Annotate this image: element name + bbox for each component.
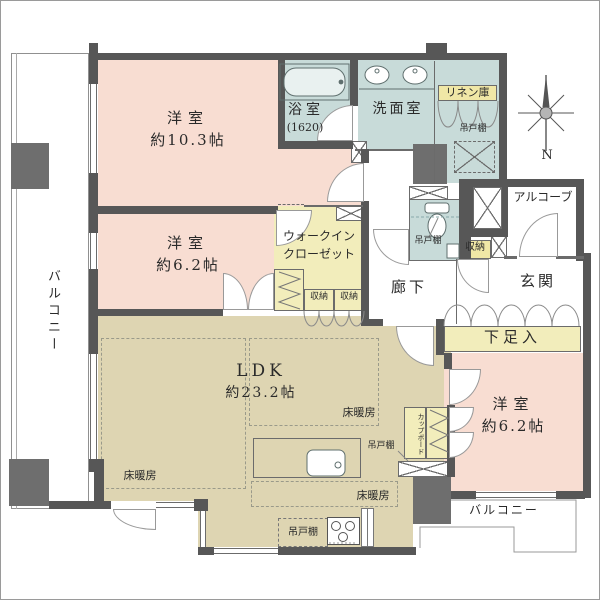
- bedroom3-size: 約6.2帖: [444, 419, 583, 435]
- entrance-label: 玄関: [515, 274, 561, 290]
- wic-label-line1: ウォークイン: [277, 230, 361, 243]
- elevator-shaft-x: [473, 187, 502, 229]
- wall-entry-door-l: [504, 256, 517, 259]
- toilet-area: [409, 199, 461, 261]
- wall-alcove-top: [502, 179, 584, 187]
- wall-kitchen-bottom: [278, 547, 416, 555]
- wall-left-5: [94, 471, 104, 502]
- wall-corridor-bottom: [361, 319, 383, 326]
- line-genkan-hall: [456, 259, 457, 324]
- wall-bedroom3-bottom-l: [451, 491, 476, 499]
- wall-bottom-left: [49, 501, 111, 509]
- hall-storage-door: [457, 259, 489, 293]
- wall-bedroom3-upper: [444, 353, 452, 369]
- wall-nook: [361, 149, 369, 163]
- bedroom2-closet: [274, 269, 304, 311]
- bedroom2-label: 洋室: [113, 236, 263, 252]
- bath-size: (1620): [278, 122, 332, 134]
- meter-box-x: [491, 236, 507, 258]
- linen-label: リネン庫: [438, 87, 497, 99]
- kitchen-island: [253, 438, 361, 478]
- compass-north-label: N: [537, 149, 557, 163]
- hanging-cupboard-label-3: 吊戸棚: [363, 442, 399, 451]
- wall-bedroom3-bottom-r: [556, 491, 585, 499]
- window-bedroom1: [90, 84, 97, 173]
- wall-left-1: [89, 60, 98, 84]
- hanging-cupboard-label-4: 吊戸棚: [280, 526, 326, 540]
- bath-label: 浴室: [280, 103, 332, 118]
- balcony-left-label: バルコニー: [39, 239, 59, 384]
- wic-label-line2: クローゼット: [277, 248, 361, 261]
- wall-kitchen-corner-2: [198, 547, 214, 555]
- duct-block-center: [413, 144, 447, 184]
- wic-storage-label-1: 収納: [305, 293, 333, 302]
- ldk-size: 約23.2帖: [201, 386, 321, 401]
- cupboard-label: カップボード: [407, 409, 424, 459]
- bedroom1-label: 洋室: [113, 111, 263, 127]
- balcony-bottom-label: バルコニー: [463, 504, 545, 517]
- alcove-label: アルコーブ: [505, 191, 581, 204]
- wall-right-lower: [583, 257, 591, 498]
- hall-storage-label: 収納: [459, 243, 491, 254]
- washroom-hanging-cupboard-x: [454, 141, 495, 173]
- wall-top: [89, 53, 507, 60]
- tall-cabinet-line: [367, 509, 368, 546]
- hanging-cupboard-label-2: 吊戸棚: [409, 237, 447, 246]
- wall-top-left-post: [89, 43, 98, 60]
- duct-block-bottom: [413, 476, 451, 524]
- line-wic-top: [304, 205, 363, 207]
- washroom-label: 洗面室: [361, 102, 435, 117]
- wall-top-block: [426, 43, 447, 54]
- wall-bath-bottom: [278, 141, 353, 149]
- compass-icon: [518, 75, 574, 151]
- toilet-door: [373, 229, 409, 265]
- hallway-label: 廊下: [385, 280, 433, 296]
- floor-heating-zone-left: [101, 338, 246, 489]
- window-ldk-bottom: [156, 502, 198, 508]
- wic-storage-label-2: 収納: [335, 293, 363, 302]
- window-bedroom2: [90, 233, 97, 269]
- cupboard-under-x: [398, 461, 449, 477]
- wall-entry-door-r: [556, 256, 584, 259]
- wall-kitchen-corner-1: [194, 499, 208, 511]
- floor-heating-label-3: 床暖房: [347, 490, 399, 502]
- wall-bedroom-divider: [89, 206, 278, 214]
- balcony-left-rail: [16, 53, 17, 509]
- pillar-balcony-bottom: [9, 459, 49, 506]
- floor-heating-label-1: 床暖房: [333, 407, 385, 419]
- wall-bath-washroom: [350, 60, 358, 106]
- pillar-balcony-top: [11, 143, 49, 189]
- wall-bedroom2-ldk: [89, 309, 223, 316]
- hanging-cupboard-label-1: 吊戸棚: [451, 125, 495, 134]
- line-wic-top-dashed: [278, 204, 304, 207]
- ldk-label: LDK: [206, 363, 316, 381]
- floor-plan: 洋室 約10.3帖 洋室 約6.2帖 洋室 約6.2帖 浴室 (1620) 洗面…: [0, 0, 600, 600]
- window-kitchen-bottom: [211, 548, 278, 554]
- balcony-door: [113, 509, 156, 530]
- shoe-cabinet-label: 下足入: [444, 330, 581, 346]
- line-washroom-right: [434, 61, 435, 183]
- entrance-door: [519, 213, 558, 257]
- shoe-cabinet-doors: [444, 305, 579, 326]
- bedroom3-label: 洋室: [444, 397, 583, 413]
- window-kitchen-left: [200, 511, 206, 547]
- bedroom1-size: 約10.3帖: [113, 133, 263, 149]
- wall-right-column: [499, 60, 507, 181]
- floor-heating-label-2: 床暖房: [114, 470, 166, 482]
- window-ldk-left: [90, 354, 97, 459]
- window-bedroom3: [474, 492, 558, 498]
- wall-left-2: [89, 173, 98, 233]
- shaft-x-strip: [409, 186, 448, 200]
- wall-corridor-right: [436, 319, 444, 355]
- bedroom2-size: 約6.2帖: [113, 258, 263, 274]
- stove: [327, 517, 360, 545]
